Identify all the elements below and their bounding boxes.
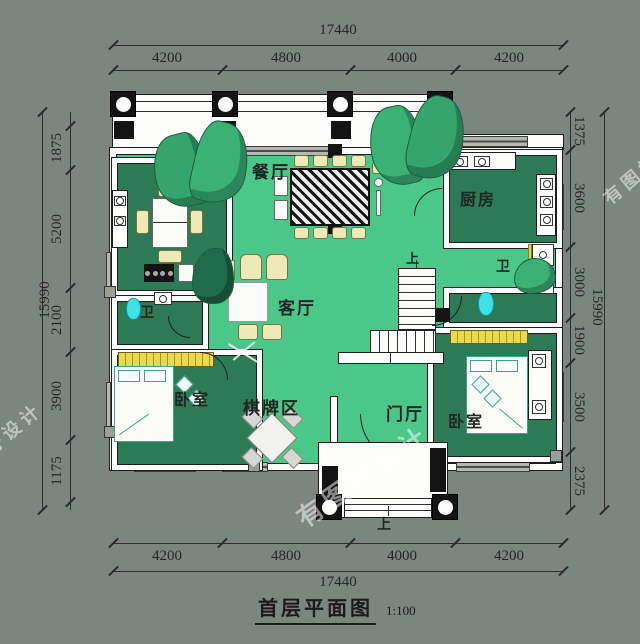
stairs-landing (338, 352, 444, 364)
dim-bottom-seg-4: 4200 (479, 548, 539, 565)
chair (294, 227, 309, 239)
appliance-icon (540, 214, 553, 226)
dim-bottom-seg-1: 4200 (137, 548, 197, 565)
sofa (266, 254, 288, 280)
dim-left-seg-5: 1175 (49, 441, 67, 501)
label-games: 棋牌区 (243, 394, 300, 419)
dim-bottom-seg-3: 4000 (372, 548, 432, 565)
label-entry-up: 上 (377, 514, 391, 534)
stairs-lower-flight (370, 330, 436, 354)
dim-bottom-total: 17440 (298, 574, 378, 591)
dim-top-seg-4: 4200 (479, 50, 539, 67)
dim-right-seg-3: 3000 (569, 252, 587, 312)
chair (136, 210, 149, 234)
porch-column (327, 91, 353, 117)
porch-pilaster (331, 121, 351, 139)
label-bedroom-left: 卧室 (174, 386, 210, 410)
cooktop-icon (144, 264, 174, 282)
watermark-text: 有图好设计 (0, 396, 48, 490)
porch-pilaster (114, 121, 134, 139)
dining-table (290, 168, 370, 226)
toilet (126, 298, 141, 320)
stairs-landing-divider (390, 353, 391, 363)
pier-marker (104, 286, 116, 298)
entry-step-line (345, 504, 431, 505)
dim-right-total: 15990 (587, 267, 605, 347)
dim-line (113, 571, 563, 572)
porch-column (212, 91, 238, 117)
dim-right-seg-5: 3500 (569, 377, 587, 437)
ottoman (262, 324, 282, 340)
porch-pilaster (430, 448, 446, 492)
closet-knob (532, 400, 546, 414)
window (456, 462, 530, 472)
label-bedroom-right: 卧室 (448, 408, 484, 432)
dim-left-edge-partial: 1875 (0, 108, 6, 168)
appliance-icon (540, 196, 553, 208)
dim-top-total: 17440 (298, 22, 378, 39)
dim-top-seg-1: 4200 (137, 50, 197, 67)
appliance-icon (540, 178, 553, 190)
porch-column (110, 91, 136, 117)
dim-bottom-seg-2: 4800 (256, 548, 316, 565)
pier-marker (550, 450, 562, 462)
wardrobe (450, 330, 528, 344)
dim-right-seg-4: 1900 (569, 310, 587, 370)
chair (351, 227, 366, 239)
label-kitchen: 厨房 (460, 186, 496, 210)
sink-icon (114, 216, 126, 226)
dim-top-seg-2: 4800 (256, 50, 316, 67)
pillow (470, 360, 492, 372)
floor-plan-canvas: 17440 4200 4800 4000 4200 4200 4800 4000… (0, 0, 640, 644)
label-stairs-up: 上 (406, 248, 419, 267)
pillow (496, 360, 518, 372)
drawing-title-text: 首层平面图 (255, 596, 376, 625)
plant-small-living (192, 248, 236, 306)
dim-left-seg-4: 3900 (49, 366, 67, 426)
dim-left-seg-3: 2100 (49, 290, 67, 350)
pillow (118, 370, 140, 382)
plant-small-right (514, 258, 558, 296)
dim-right-seg-6: 2375 (569, 451, 587, 511)
sofa (240, 254, 262, 280)
chair (158, 250, 182, 263)
chair (332, 155, 347, 167)
drawing-scale: 1:100 (386, 603, 416, 618)
dim-right-seg-2: 3600 (569, 168, 587, 228)
chair (313, 155, 328, 167)
stove-icon (474, 156, 490, 167)
dim-left-seg-2: 5200 (49, 199, 67, 259)
chair (351, 155, 366, 167)
flourish-ornament (226, 336, 262, 372)
plant-large-right (370, 96, 464, 196)
chair (332, 227, 347, 239)
label-dining: 餐厅 (252, 158, 290, 183)
label-bath-right: 卫 (496, 256, 512, 276)
dim-left-seg-1: 1875 (49, 118, 67, 178)
annex-table-divider (153, 222, 187, 223)
chair (294, 155, 309, 167)
label-living: 客厅 (278, 294, 316, 319)
pillow (144, 370, 166, 382)
window (462, 136, 528, 147)
stove-icon (114, 196, 126, 206)
drawing-title: 首层平面图1:100 (255, 592, 416, 621)
dim-right-seg-1: 1375 (569, 101, 587, 161)
stairs-upper-flight (398, 268, 436, 330)
dim-top-seg-3: 4000 (372, 50, 432, 67)
porch-column (432, 494, 458, 520)
dim-line (113, 70, 563, 71)
plant-large-left (152, 120, 250, 216)
closet-knob (532, 354, 546, 368)
dim-line (604, 112, 605, 510)
dim-line (113, 543, 563, 544)
sink-icon (154, 292, 172, 305)
chair (274, 200, 288, 220)
dim-line (113, 45, 563, 46)
label-bath-left: 卫 (140, 302, 156, 322)
chair (313, 227, 328, 239)
toilet (478, 292, 494, 316)
